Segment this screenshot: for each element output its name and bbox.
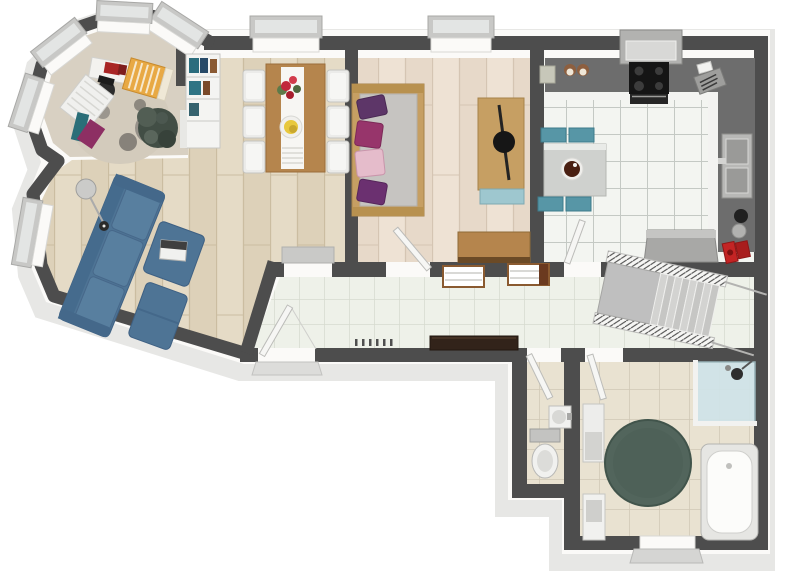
coat-hook: [362, 339, 365, 346]
sink-faucet: [718, 158, 726, 164]
kitchen-chair-teal: [538, 197, 563, 211]
window-dining: [250, 16, 322, 52]
stair-head-box-top: [646, 230, 716, 238]
burner: [655, 82, 663, 90]
bathroom-cabinet-front: [585, 432, 602, 460]
flower-red: [281, 81, 291, 91]
plant-leaf: [158, 130, 176, 148]
mixer-head: [735, 241, 750, 259]
bed-headboard: [352, 84, 424, 93]
bathroom-vanity-basin: [586, 500, 602, 522]
dining-chair-seat: [330, 144, 346, 170]
window-bathroom-south-sill: [630, 549, 703, 563]
kitchen-chair-teal: [566, 197, 591, 211]
kitchen-chair-teal: [569, 128, 594, 142]
wc-sink-basin: [552, 410, 566, 424]
bed-throw-purple: [356, 179, 387, 206]
arc-floor-lamp-shade: [76, 179, 96, 199]
flower-leaves: [293, 85, 301, 93]
floor-plan-canvas: [0, 0, 791, 579]
wc-sink-tap: [567, 413, 572, 420]
small-brown-shelf: [539, 264, 548, 285]
plant-leaf: [137, 107, 157, 127]
kitchen-table-edge: [544, 144, 606, 150]
flower-red: [286, 91, 294, 99]
shoe-rack: [443, 266, 484, 287]
wall-wc-west: [512, 348, 527, 498]
coat-hook: [355, 339, 358, 346]
book: [189, 103, 199, 116]
shower-knob: [725, 365, 731, 371]
bread-loaf-top: [567, 69, 574, 76]
toilet-seat: [537, 450, 553, 472]
laptop: [160, 240, 188, 261]
burner: [655, 67, 663, 75]
book: [189, 81, 201, 95]
pillow: [355, 149, 386, 178]
burner: [635, 67, 644, 76]
fruit-bowl-shade: [289, 125, 297, 133]
shower-frame: [693, 421, 757, 426]
shower-head: [731, 368, 743, 380]
tv-screen: [493, 131, 515, 153]
coat-hook: [390, 339, 393, 346]
window-frame: [431, 38, 491, 52]
front-door-threshold: [252, 362, 322, 375]
bed-pillow-magenta: [354, 120, 383, 148]
shower-glass: [696, 362, 755, 424]
dining-chair-seat: [246, 109, 262, 135]
wall-bathroom-west: [564, 348, 580, 550]
serving-bowl: [564, 161, 580, 177]
book: [200, 58, 208, 73]
dining-chair-seat: [246, 73, 262, 99]
serving-bowl-speck: [573, 163, 577, 167]
bedroom-desk-front: [458, 257, 530, 263]
bed-footboard: [352, 207, 424, 216]
cooktop: [629, 62, 669, 94]
window-bathroom-south-frame: [640, 536, 695, 549]
arc-floor-lamp-base-dot: [103, 225, 106, 228]
teal-bench: [480, 189, 524, 204]
window-glass: [255, 20, 317, 33]
extractor-hood-inner: [626, 41, 676, 60]
toilet-tank: [530, 429, 560, 442]
window-frame: [253, 38, 319, 52]
bed-pillow-pink-pattern: [355, 149, 386, 178]
dining-chair-seat: [246, 144, 262, 170]
sink-basin: [726, 168, 748, 193]
bath-round-rug-inner: [613, 428, 683, 498]
window-turret-n: [95, 1, 153, 35]
oven-front: [630, 94, 668, 104]
shower-frame: [693, 360, 698, 426]
kitchen-chair-teal: [541, 128, 566, 142]
book: [189, 58, 199, 73]
trash-bin-black: [734, 209, 748, 223]
bread-loaf-top: [580, 69, 587, 76]
red-book: [118, 64, 128, 75]
counter-right-edge: [708, 96, 718, 250]
book: [210, 59, 217, 73]
bathtub-drain: [726, 463, 732, 469]
dining-chair-seat: [330, 73, 346, 99]
sink-basin: [726, 139, 748, 164]
rug-flower: [119, 133, 137, 151]
window-frame: [97, 21, 150, 35]
plant-leaf: [156, 112, 168, 124]
coat-hook: [383, 339, 386, 346]
opening-living-hall: [284, 262, 332, 277]
dining-chair-seat: [330, 109, 346, 135]
plant-leaf: [144, 130, 158, 144]
pillow: [354, 120, 383, 148]
trash-bin-gray: [732, 224, 746, 238]
window-bedroom: [428, 16, 494, 52]
coat-hook: [376, 339, 379, 346]
coat-hook: [369, 339, 372, 346]
stair-landing: [597, 262, 661, 324]
cutting-board: [540, 66, 555, 83]
floor-plan-svg: [0, 0, 791, 579]
book: [203, 81, 210, 95]
flower-red: [289, 76, 297, 84]
window-glass: [433, 20, 489, 33]
lintel-living-hall: [282, 247, 334, 263]
burner: [634, 81, 644, 91]
bookshelf-side-panel: [180, 110, 187, 148]
pillow: [356, 179, 387, 206]
